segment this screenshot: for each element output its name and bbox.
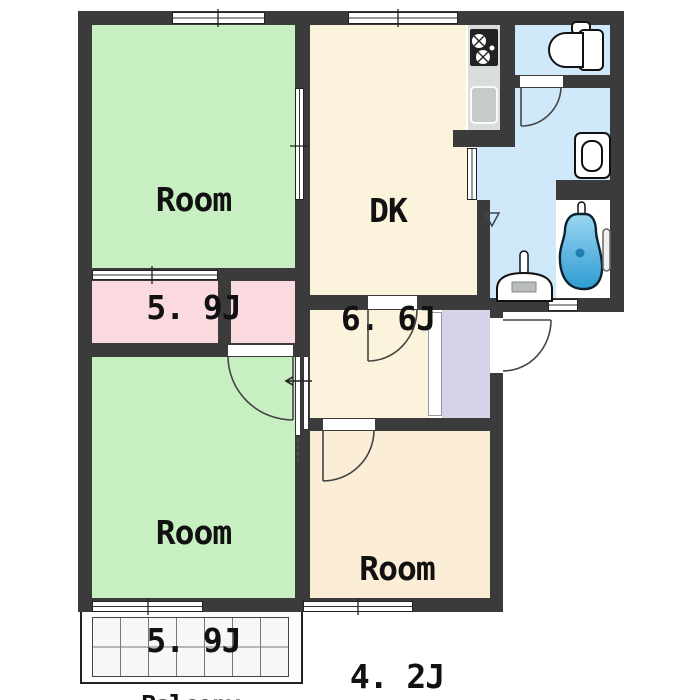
- wall-right-upper: [610, 11, 624, 312]
- room-upper-left-label: Room 5. 9J: [92, 110, 295, 398]
- room-area: 4. 2J: [310, 659, 484, 695]
- dining-kitchen-label: DK 6. 6J: [310, 121, 466, 409]
- sliding-door-room-lower-hall-a: [295, 356, 301, 436]
- balcony-label: Balcony: [92, 635, 289, 700]
- door-opening-room-small: [323, 419, 375, 430]
- sliding-door-room-lower-hall-b: [303, 356, 309, 430]
- sliding-door-dk-washroom: [467, 148, 477, 200]
- door-opening-toilet: [520, 76, 563, 87]
- sliding-door-room-upper-dk: [295, 88, 304, 200]
- room-name: Room: [92, 515, 295, 551]
- floor-plan: Room 5. 9J DK 6. 6J Room 5. 9J Room 4. 2…: [0, 0, 700, 700]
- room-name: DK: [310, 193, 466, 229]
- wall-dk-toilet: [500, 11, 515, 132]
- room-area: 6. 6J: [310, 301, 466, 337]
- room-small-label: Room 4. 2J: [310, 479, 484, 700]
- bathroom-floor: [556, 200, 610, 298]
- kitchen-counter: [466, 25, 500, 132]
- door-opening-entrance: [490, 318, 503, 373]
- door-entrance: [503, 320, 551, 371]
- room-area: 5. 9J: [92, 290, 295, 326]
- room-name: Room: [92, 182, 295, 218]
- window-washroom-bottom: [548, 299, 578, 311]
- room-name: Room: [310, 551, 484, 587]
- window-room-upper-top: [172, 12, 265, 24]
- wall-bathroom-top: [556, 180, 610, 200]
- wall-left: [78, 11, 92, 612]
- window-dk-top: [348, 12, 458, 24]
- toilet-room-floor: [515, 22, 610, 75]
- wall-dk-washroom: [477, 200, 490, 310]
